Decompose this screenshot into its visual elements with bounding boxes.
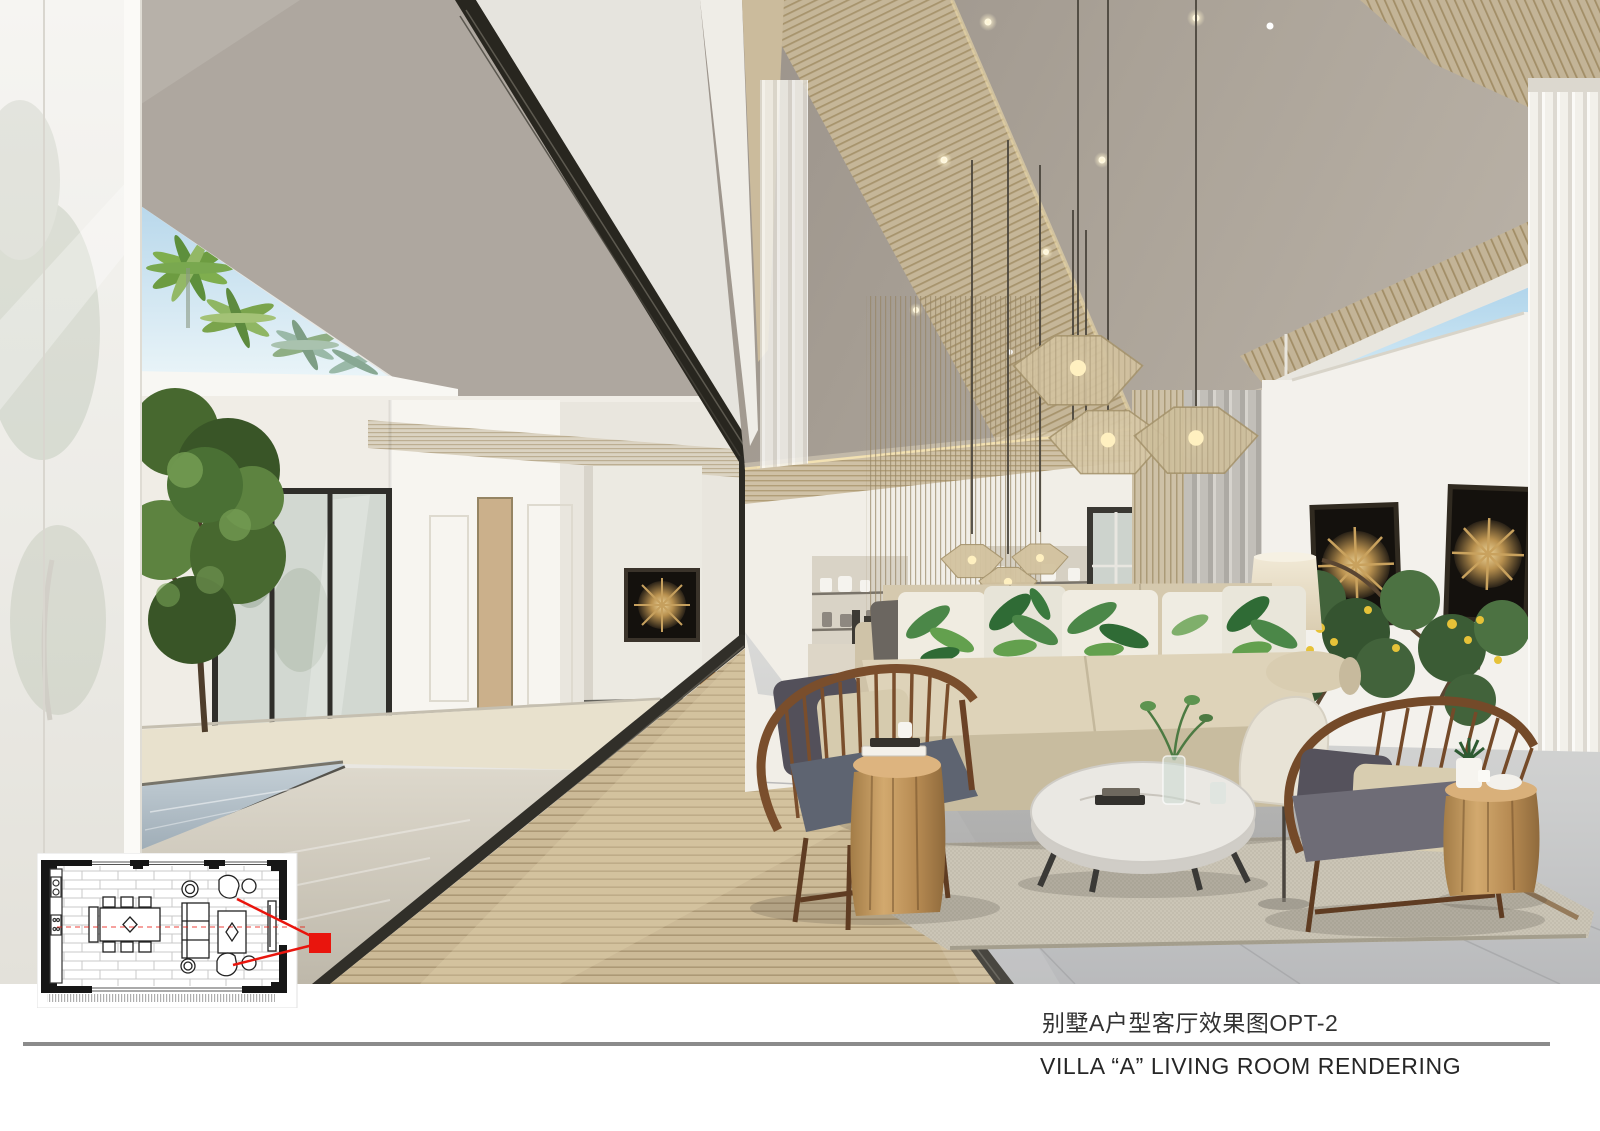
driftwood-artwork-2 [1446, 487, 1531, 622]
caption-english: VILLA “A” LIVING ROOM RENDERING [1040, 1053, 1461, 1080]
left-glass-wall [0, 0, 142, 984]
floor-plan [37, 853, 340, 1008]
white-pillow [1162, 592, 1232, 664]
floor-plan-inset [37, 853, 340, 1008]
caption-divider-line [23, 1042, 1550, 1046]
rendering-scene [0, 0, 1600, 984]
presentation-page: 别墅A户型客厅效果图OPT-2 VILLA “A” LIVING ROOM RE… [0, 0, 1600, 1131]
alcove-artwork [626, 570, 698, 640]
bowl [1486, 774, 1522, 790]
marble-top [1031, 762, 1255, 862]
deck-hatch [47, 994, 275, 1002]
tropical-pillow [984, 585, 1066, 666]
plan-kitchen [50, 869, 62, 983]
book-stack [862, 746, 926, 756]
book [1095, 795, 1145, 805]
tropical-pillow [1062, 590, 1158, 666]
caption-chinese: 别墅A户型客厅效果图OPT-2 [1042, 1004, 1338, 1038]
glass-edge [124, 0, 142, 984]
villa-living-room-rendering [0, 0, 1600, 984]
camera-position [309, 933, 331, 953]
hallway-door [478, 498, 512, 724]
